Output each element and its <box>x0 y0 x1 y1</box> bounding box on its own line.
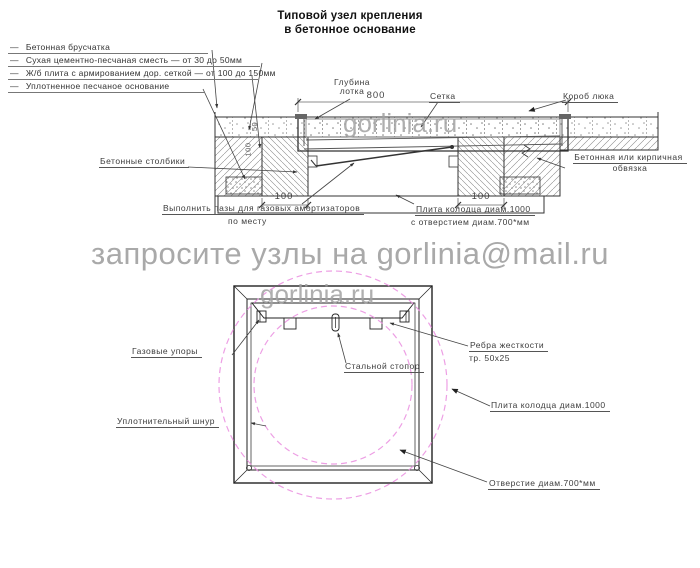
tray-rim-left <box>295 114 307 119</box>
label-well-slab-line1: Плита колодца диам.1000 <box>415 204 535 216</box>
legend-item-paving: —Бетонная брусчатка <box>8 42 208 54</box>
dimension-100-vertical: 100 <box>244 142 253 156</box>
label-ribs-line2: тр. 50х25 <box>469 353 510 363</box>
label-mesh: Сетка <box>429 91 460 103</box>
right-sand-pocket <box>500 177 540 194</box>
gas-strut-line <box>316 147 452 166</box>
watermark-email-banner: запросите узлы на gorlinia@mail.ru <box>0 236 700 272</box>
label-hatch-box: Короб люка <box>562 91 618 103</box>
watermark-site-section: gorlinia.ru <box>343 108 457 139</box>
rib-notch-left <box>284 318 296 329</box>
legend-bullet: — <box>10 68 19 78</box>
dimension-800: 800 <box>356 90 396 101</box>
label-concrete-posts: Бетонные столбики <box>99 156 189 168</box>
label-well-slab-line2: с отверстием диам.700*мм <box>411 217 530 227</box>
legend-text: Уплотненное песчаное основание <box>26 81 170 91</box>
legend-item-mix: —Сухая цементно-песчаная сместь — от 30 … <box>8 55 260 67</box>
legend-bullet: — <box>10 42 19 52</box>
opening-circle-700 <box>254 306 412 464</box>
watermark-site-plan: gorlinia.ru <box>260 279 374 310</box>
tray-rim-right <box>559 114 571 119</box>
drawing-title-line1: Типовой узел крепления <box>0 10 700 22</box>
legend-text: Бетонная брусчатка <box>26 42 110 52</box>
label-binding-line2: обвязка <box>562 163 698 174</box>
legend-bullet: — <box>10 81 19 91</box>
rib-notch-right <box>370 318 382 329</box>
legend-bullet: — <box>10 55 19 65</box>
label-plan-well-slab: Плита колодца диам.1000 <box>490 400 610 412</box>
plan-view-drawing <box>234 286 432 483</box>
legend-item-sand: —Уплотненное песчаное основание <box>8 81 204 93</box>
legend-item-slab: —Ж/б плита с армированием дор. сеткой — … <box>8 68 258 80</box>
label-opening: Отверстие диам.700*мм <box>488 478 600 490</box>
drawing-canvas: Типовой узел крепления в бетонное основа… <box>0 0 700 568</box>
label-grooves-line2: по месту <box>228 216 267 226</box>
gas-strut-pivot <box>450 145 454 149</box>
label-gas-struts: Газовые упоры <box>131 346 202 358</box>
left-column <box>262 137 308 196</box>
dimension-50-vertical: 50 <box>250 122 259 131</box>
right-band <box>560 137 658 150</box>
drawing-title-line2: в бетонное основание <box>0 24 700 36</box>
label-seal-cord: Уплотнительный шнур <box>116 416 219 428</box>
label-ribs-line1: Ребра жесткости <box>469 340 548 352</box>
dimension-100-right: 100 <box>467 191 495 202</box>
label-binding: Бетонная или кирпичная обвязка <box>562 152 698 174</box>
plan-leader-lines <box>232 320 490 482</box>
plan-inner-frame-2 <box>251 303 415 466</box>
legend-text: Сухая цементно-песчаная сместь — от 30 д… <box>26 55 242 65</box>
left-sand-pocket <box>226 177 262 194</box>
label-steel-stopper: Стальной стопор <box>344 361 424 373</box>
label-grooves-line1: Выполнить пазы для газовых амортизаторов <box>162 203 364 215</box>
groove-right <box>449 156 458 167</box>
dimension-100-left: 100 <box>270 191 298 202</box>
legend-text: Ж/б плита с армированием дор. сеткой — о… <box>26 68 276 78</box>
plan-inner-frame <box>247 299 419 470</box>
